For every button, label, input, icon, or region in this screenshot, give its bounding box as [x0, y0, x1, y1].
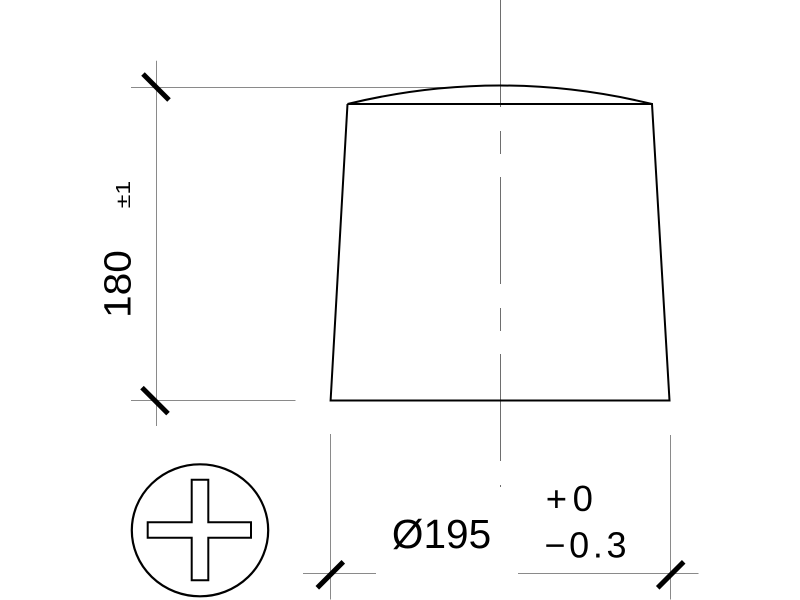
svg-text:+0: +0 [546, 478, 599, 519]
svg-text:−0.3: −0.3 [544, 525, 630, 566]
svg-text:±1: ±1 [111, 181, 134, 208]
svg-text:Ø195: Ø195 [392, 511, 491, 557]
svg-text:180: 180 [96, 250, 139, 318]
